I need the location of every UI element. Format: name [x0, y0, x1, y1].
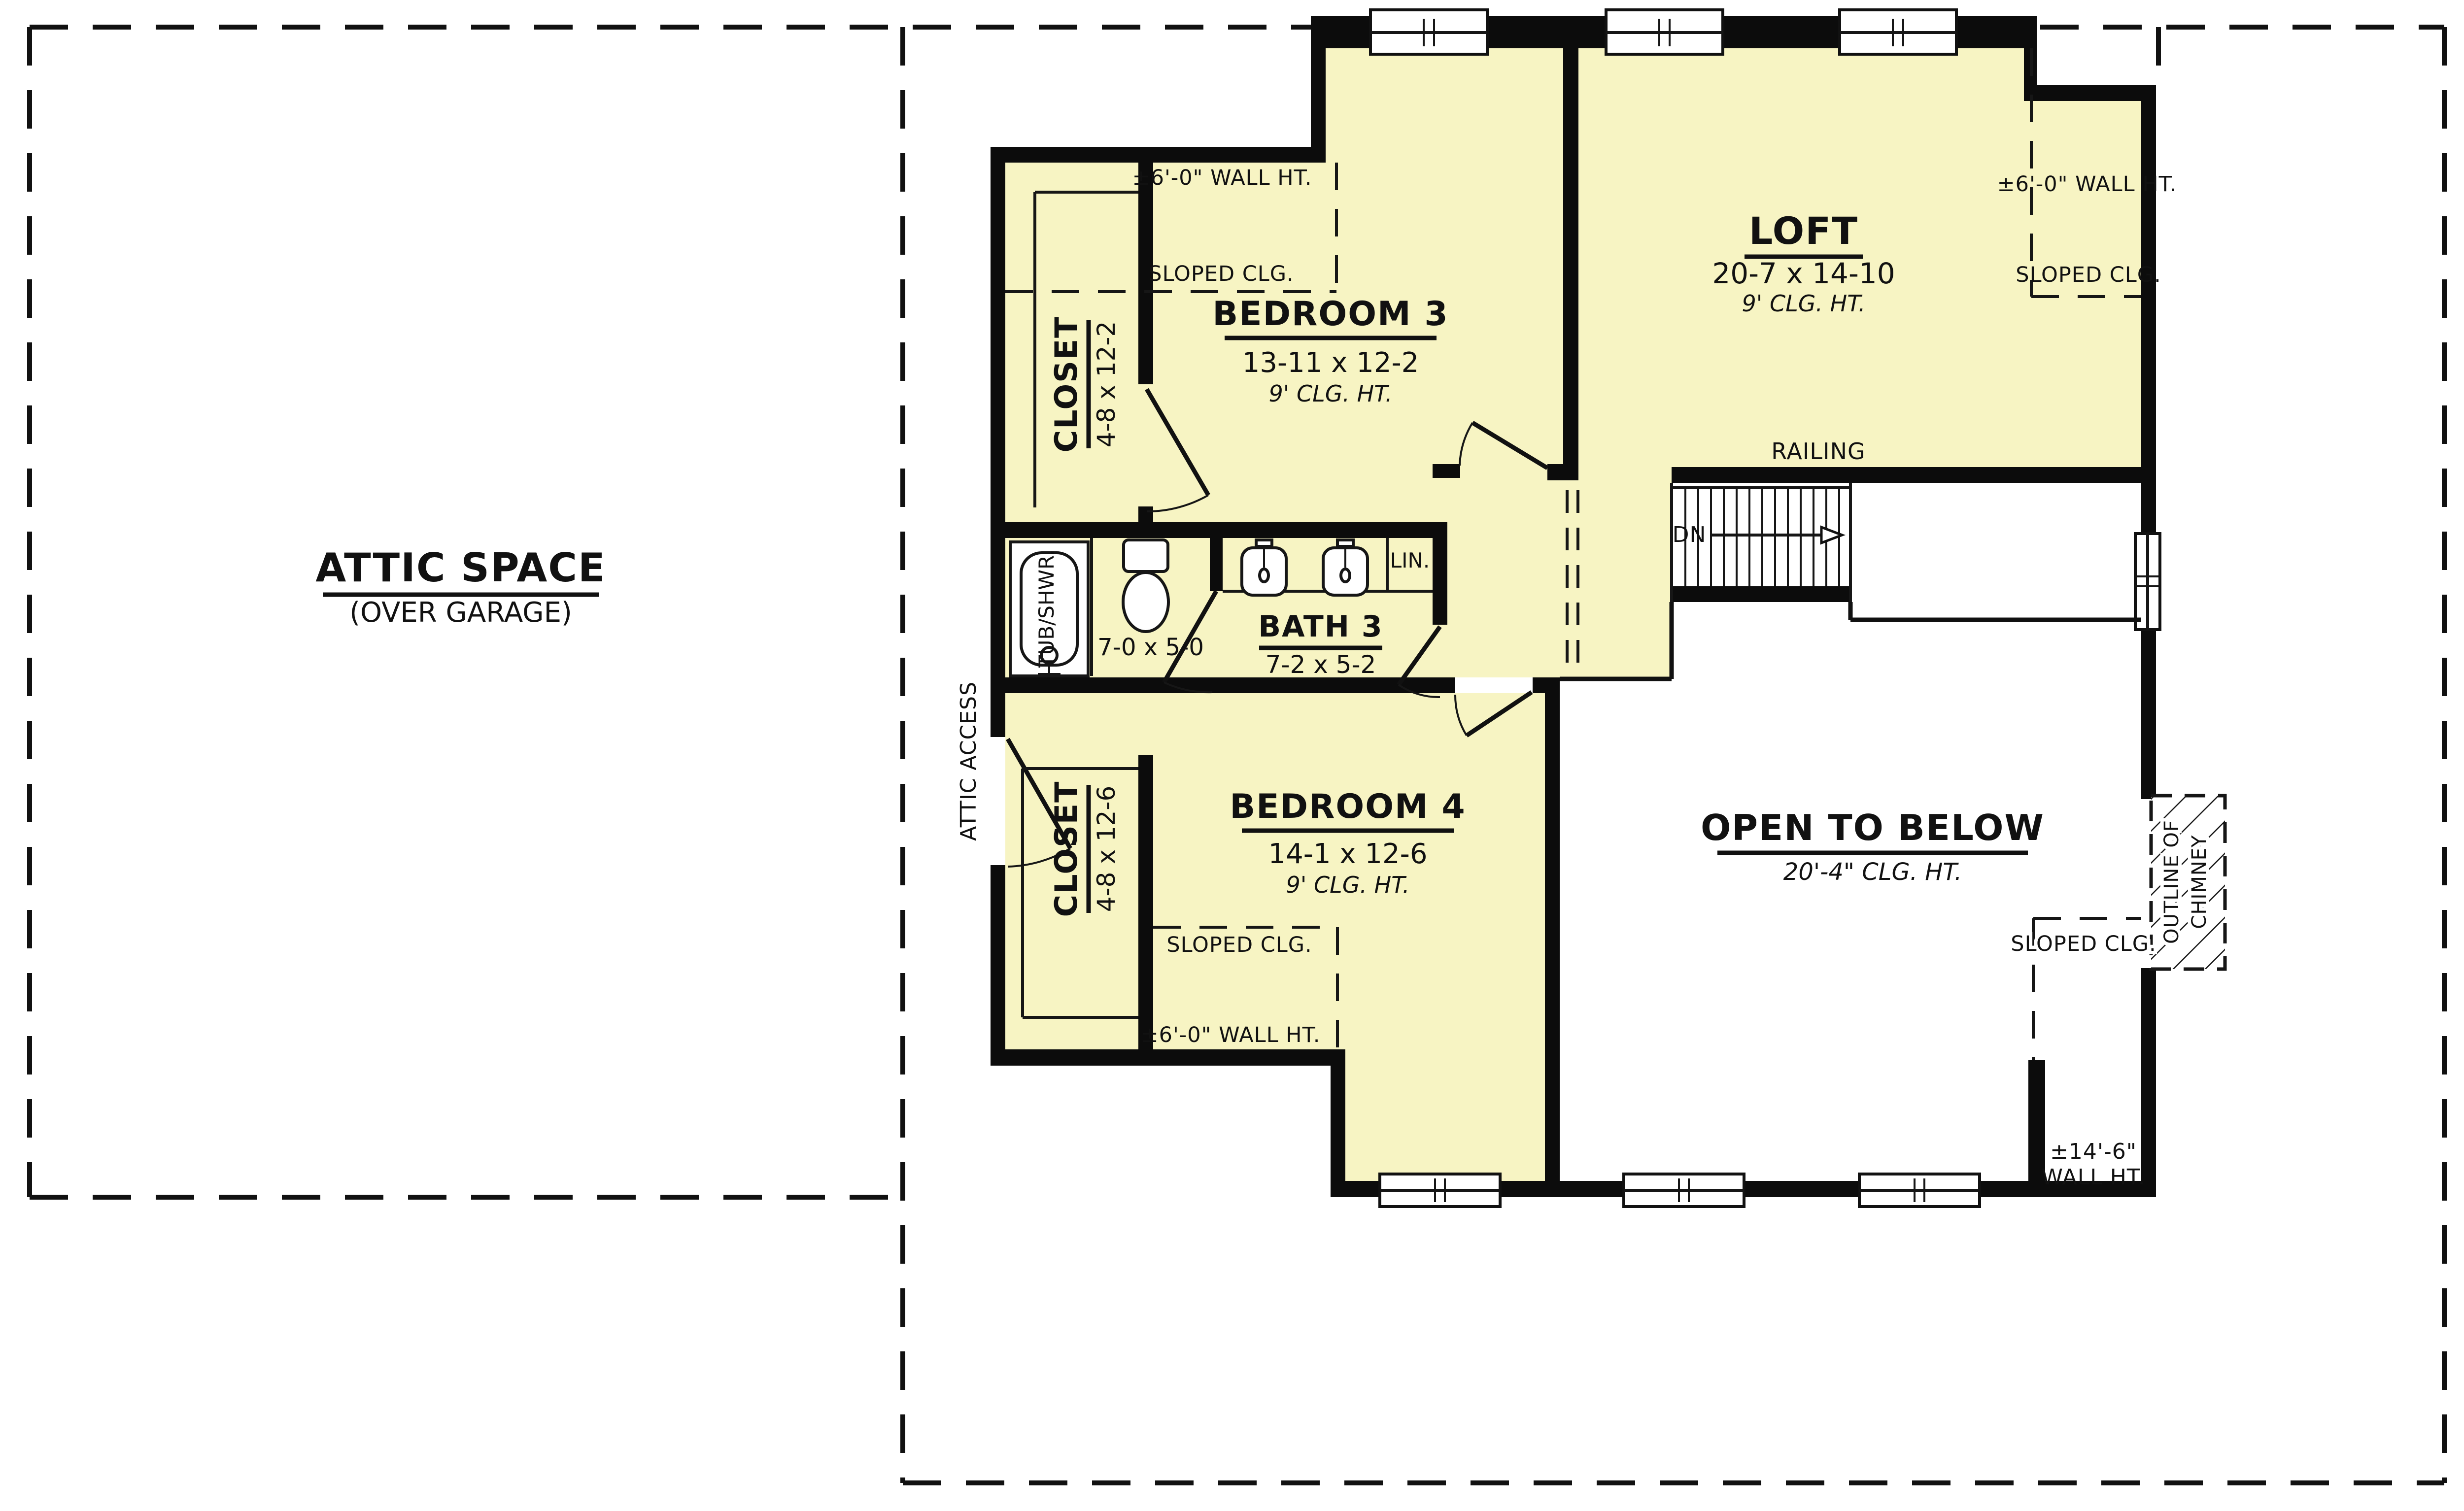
window-symbol [1624, 1174, 1744, 1207]
wall-height-14-note-line2: WALL HT. [2042, 1165, 2146, 1190]
window-symbol [1370, 10, 1487, 54]
chimney-label-line1: OUTLINE OF [2160, 820, 2183, 944]
closet3-dims: 4-8 x 12-2 [1092, 321, 1121, 448]
wall-segment [2141, 630, 2156, 799]
wall-segment [1331, 1049, 1345, 1197]
window-symbol [1840, 10, 1956, 54]
sloped-ceiling-note-loft: SLOPED CLG. [2016, 263, 2161, 287]
attic-space-label: ATTIC SPACE (OVER GARAGE) [315, 545, 606, 629]
wall-segment [991, 677, 1455, 693]
wall-segment [991, 147, 1326, 163]
wall-segment [1533, 677, 1560, 693]
window-symbol [1380, 1174, 1500, 1207]
attic-space-subtitle: (OVER GARAGE) [349, 597, 572, 629]
floor-plan-page: OUTLINE OF CHIMNEY ATTIC SPACE (OVER GAR… [0, 0, 2464, 1511]
room-label-open-to-below: OPEN TO BELOW 20'-4" CLG. HT. [1701, 807, 2045, 886]
bedroom3-name: BEDROOM 3 [1212, 295, 1448, 334]
wall-segment [1545, 692, 1560, 1181]
wall-segment [991, 1049, 1345, 1066]
wall-height-note-bedroom4: ±6'-0" WALL HT. [1141, 1023, 1321, 1047]
wall-segment [1210, 538, 1223, 591]
wall-segment [991, 522, 1447, 538]
wall-segment [1433, 522, 1447, 625]
wall-segment [1563, 48, 1578, 480]
bedroom3-ceiling: 9' CLG. HT. [1268, 380, 1392, 407]
wall-segment [2024, 85, 2156, 101]
wall-height-note-bedroom3: ±6'-0" WALL HT. [1132, 166, 1312, 190]
wall-segment [1547, 464, 1578, 480]
wall-segment [1311, 23, 1326, 147]
attic-space-title: ATTIC SPACE [315, 545, 606, 591]
loft-name: LOFT [1749, 209, 1858, 253]
window-symbol [2135, 534, 2160, 630]
closet4-dims: 4-8 x 12-6 [1092, 786, 1121, 912]
wall-segment [1433, 464, 1460, 478]
wall-segment [2141, 101, 2156, 534]
wall-segment [1138, 506, 1153, 522]
sink-symbol [1323, 540, 1368, 595]
hall-passage-floor [1447, 470, 1578, 677]
window-symbol [1859, 1174, 1980, 1207]
wall-segment [991, 147, 1005, 737]
wall-height-note-loft: ±6'-0" WALL HT. [1997, 172, 2177, 197]
wall-segment [1138, 755, 1153, 1066]
sloped-ceiling-note-bedroom4: SLOPED CLG. [1166, 933, 1312, 957]
sink-symbol [1242, 540, 1286, 595]
stairs-down-label: DN [1673, 522, 1707, 547]
wall-segment [2141, 968, 2156, 1181]
railing-label: RAILING [1771, 438, 1865, 465]
toilet-symbol [1123, 540, 1168, 632]
chimney-label-line2: CHIMNEY [2188, 835, 2211, 929]
loft-dims: 20-7 x 14-10 [1712, 257, 1895, 290]
bath3-dims: 7-2 x 5-2 [1266, 650, 1376, 679]
stair-treads [1685, 489, 1839, 586]
loft-hall-floor [1578, 48, 2141, 679]
open-to-below-ceiling: 20'-4" CLG. HT. [1783, 858, 1962, 886]
closet3-name: CLOSET [1048, 316, 1084, 453]
floor-plan-drawing: OUTLINE OF CHIMNEY ATTIC SPACE (OVER GAR… [0, 0, 2464, 1511]
sloped-ceiling-note-lower-right: SLOPED CLG. [2011, 932, 2156, 956]
bedroom4-name: BEDROOM 4 [1230, 787, 1466, 826]
wall-segment [1672, 586, 1850, 602]
closet4-name: CLOSET [1048, 781, 1084, 917]
bedroom4-ceiling: 9' CLG. HT. [1286, 872, 1409, 898]
bath3-name: BATH 3 [1258, 609, 1383, 644]
tub-shower-label: TUB/SHWR. [1034, 549, 1059, 668]
bedroom4-dims: 14-1 x 12-6 [1268, 838, 1428, 870]
attic-access-label: ATTIC ACCESS [956, 681, 981, 841]
railing-wall [1672, 467, 2141, 483]
bedroom3-dims: 13-11 x 12-2 [1242, 347, 1419, 379]
sloped-ceiling-note-bedroom3: SLOPED CLG. [1148, 262, 1294, 286]
loft-ceiling: 9' CLG. HT. [1742, 290, 1865, 317]
chimney-outline: OUTLINE OF CHIMNEY [2151, 796, 2225, 969]
window-symbol [1606, 10, 1723, 54]
wall-segment [991, 865, 1005, 1066]
wall-height-14-note-line1: ±14'-6" [2050, 1139, 2137, 1164]
bath3-alcove-dims: 7-0 x 5-0 [1097, 634, 1204, 661]
open-to-below-name: OPEN TO BELOW [1701, 807, 2045, 848]
linen-label: LIN. [1390, 548, 1430, 572]
